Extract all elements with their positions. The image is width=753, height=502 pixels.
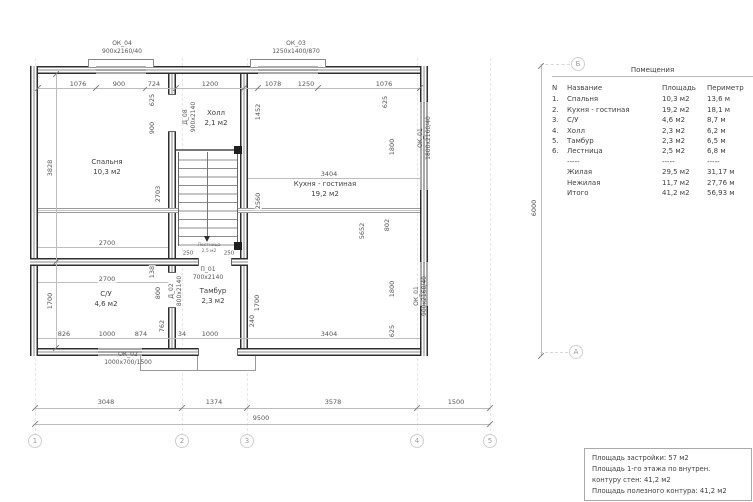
wall [30, 66, 428, 74]
dim-label: 2700 [98, 276, 117, 283]
room-name: Лестница [198, 243, 221, 249]
window-size: 1000х700/1500 [104, 359, 152, 367]
dim-label: 3404 [320, 331, 339, 338]
window-size: 900х2160/40 [102, 48, 142, 56]
dimension-line [35, 408, 490, 409]
summary-line-3: контуру стен: 41,2 м2 [592, 475, 744, 486]
door-size: 700х2140 [193, 274, 223, 282]
window-label-ok03: ОК_03 1250х1400/870 [272, 40, 320, 56]
table-row: 3. С/У 4,6 м2 8,7 м [552, 115, 753, 125]
dim-label: 250 [223, 251, 236, 257]
dimension-line [38, 338, 420, 339]
door-label-d08: Д_08 900х2140 [182, 102, 198, 132]
room-label-tambour: Тамбур 2,3 м2 [200, 287, 227, 307]
dim-label: 1700 [254, 294, 261, 313]
stair-direction-arrow-icon [204, 236, 210, 242]
window-id: ОК_01 [417, 116, 425, 160]
dim-label: 802 [384, 218, 391, 232]
dim-label: 2560 [255, 192, 262, 211]
grid-axis-4 [417, 58, 418, 436]
room-label-wc: С/У 4,6 м2 [94, 290, 117, 310]
stair-post [234, 242, 242, 250]
cell-perimeter: 6,8 м [707, 146, 753, 156]
dim-label: 240 [249, 314, 256, 328]
cell-perimeter: 13,6 м [707, 94, 753, 104]
window-ok03 [258, 66, 318, 74]
dimension-line [541, 66, 542, 356]
dim-label: 34 [177, 331, 187, 338]
room-area: 10,3 м2 [91, 168, 122, 178]
cell-n [552, 157, 567, 167]
cell-area: 29,5 м2 [662, 167, 707, 177]
dim-label: 762 [159, 319, 166, 333]
room-name: С/У [94, 290, 117, 300]
dim-label: 5652 [359, 222, 366, 241]
door-id: Д_08 [182, 102, 190, 132]
cell-perimeter: 8,7 м [707, 115, 753, 125]
dim-label: 800 [155, 286, 162, 300]
cell-name: ----- [567, 157, 662, 167]
door-size: 900х2140 [190, 102, 198, 132]
grid-bubble-a: А [569, 345, 583, 359]
dimension-line [56, 74, 57, 348]
dim-label: 1374 [205, 399, 224, 406]
cell-perimeter: 6,2 м [707, 126, 753, 136]
window-size: 900х2160/40 [421, 276, 429, 316]
table-row: Нежилая 11,7 м2 27,76 м [552, 178, 753, 188]
cell-name: Итого [567, 188, 662, 198]
stair-top-edge [176, 149, 240, 151]
dim-label: 138 [149, 265, 156, 279]
dim-label: 2703 [155, 185, 162, 204]
room-name: Тамбур [200, 287, 227, 297]
dim-label: 625 [149, 93, 156, 107]
cell-area: 11,7 м2 [662, 178, 707, 188]
cell-name: Нежилая [567, 178, 662, 188]
window-id: ОК_02 [104, 351, 152, 359]
room-area: 2,3 м2 [200, 297, 227, 307]
dim-label: 826 [57, 331, 71, 338]
cell-name: С/У [567, 115, 662, 125]
cell-perimeter: 27,76 м [707, 178, 753, 188]
cell-n: 6. [552, 146, 567, 156]
window-label-ok04: ОК_04 900х2160/40 [102, 40, 142, 56]
rooms-table-header: N Название Площадь Периметр [552, 83, 753, 93]
door-id: Д_02 [168, 276, 176, 306]
door-id: П_01 [193, 266, 223, 274]
cell-n: 1. [552, 94, 567, 104]
room-area: 4,6 м2 [94, 300, 117, 310]
table-row: 4. Холл 2,3 м2 6,2 м [552, 126, 753, 136]
dim-label: 3404 [320, 171, 339, 178]
cell-name: Холл [567, 126, 662, 136]
dim-label: 900 [112, 81, 126, 88]
rooms-table: Помещения N Название Площадь Периметр 1.… [552, 66, 753, 198]
cell-perimeter: 18,1 м [707, 105, 753, 115]
dim-label: 3578 [324, 399, 343, 406]
dimension-line [38, 247, 168, 248]
cell-area: ----- [662, 157, 707, 167]
room-label-kitchen: Кухня - гостиная 19,2 м2 [294, 180, 357, 200]
entry-door-opening [198, 348, 238, 356]
table-row: 5. Тамбур 2,3 м2 6,5 м [552, 136, 753, 146]
dim-label: 1500 [447, 399, 466, 406]
window-ok04 [96, 66, 146, 74]
summary-line-4: Площадь полезного контура: 41,2 м2 [592, 486, 744, 497]
dim-label: 3828 [47, 159, 54, 178]
cell-area: 19,2 м2 [662, 105, 707, 115]
window-id: ОК_03 [272, 40, 320, 48]
door-label-p01: П_01 700х2140 [193, 266, 223, 282]
col-header-name: Название [567, 83, 662, 93]
staircase [178, 152, 238, 246]
room-label-bedroom: Спальня 10,3 м2 [91, 158, 122, 178]
stair-post [234, 146, 242, 154]
grid-bubble-3: 3 [240, 434, 254, 448]
cell-area: 41,2 м2 [662, 188, 707, 198]
cell-perimeter: ----- [707, 157, 753, 167]
dim-label: 625 [389, 324, 396, 338]
room-name: Кухня - гостиная [294, 180, 357, 190]
room-area: 19,2 м2 [294, 190, 357, 200]
wall [30, 66, 38, 356]
cell-area: 2,3 м2 [662, 126, 707, 136]
window-id: ОК_01 [413, 276, 421, 316]
cell-area: 2,5 м2 [662, 146, 707, 156]
dim-label: 1800 [389, 280, 396, 299]
room-label-stairs: Лестница 2,5 м2 [198, 243, 221, 255]
grid-bubble-1: 1 [28, 434, 42, 448]
dim-label: 625 [382, 95, 389, 109]
room-label-hall: Холл 2,1 м2 [204, 109, 227, 129]
cell-n [552, 178, 567, 188]
cell-n: 2. [552, 105, 567, 115]
rooms-table-title: Помещения [552, 66, 753, 77]
summary-line-2: Площадь 1-го этажа по внутрен. [592, 464, 744, 475]
dimension-line [248, 178, 420, 179]
dim-label: 1200 [201, 81, 220, 88]
stair-walk-line [207, 152, 208, 236]
dim-label: 724 [147, 81, 161, 88]
cell-area: 10,3 м2 [662, 94, 707, 104]
cell-name: Спальня [567, 94, 662, 104]
area-summary-box: Площадь застройки: 57 м2 Площадь 1-го эт… [584, 448, 752, 501]
dim-label: 900 [149, 121, 156, 135]
table-row: Жилая 29,5 м2 31,17 м [552, 167, 753, 177]
cell-n: 3. [552, 115, 567, 125]
dim-label: 1000 [201, 331, 220, 338]
cell-name: Кухня - гостиная [567, 105, 662, 115]
dim-label: 250 [182, 251, 195, 257]
window-label-ok01-top: ОК_01 1800х2160/40 [417, 116, 433, 160]
cell-n [552, 188, 567, 198]
dim-label: 1250 [297, 81, 316, 88]
cell-n [552, 167, 567, 177]
table-row: ----- ----- ----- [552, 157, 753, 167]
dim-label: 1800 [389, 138, 396, 157]
door-opening-p01 [198, 258, 232, 266]
grid-bubble-2: 2 [175, 434, 189, 448]
dim-label: 1000 [98, 331, 117, 338]
dim-label: 1078 [264, 81, 283, 88]
room-name: Спальня [91, 158, 122, 168]
room-area: 2,1 м2 [204, 119, 227, 129]
col-header-n: N [552, 83, 567, 93]
cell-perimeter: 31,17 м [707, 167, 753, 177]
cell-perimeter: 6,5 м [707, 136, 753, 146]
dim-tick [538, 353, 544, 359]
room-area: 2,5 м2 [198, 249, 221, 255]
floor-plan-sheet: Лестница 2,5 м2 Спальня 10,3 м2 Холл 2,1… [0, 0, 753, 502]
cell-area: 4,6 м2 [662, 115, 707, 125]
window-id: ОК_04 [102, 40, 142, 48]
room-name: Холл [204, 109, 227, 119]
window-size: 1250х1400/870 [272, 48, 320, 56]
dim-label: 3048 [97, 399, 116, 406]
col-header-perimeter: Периметр [707, 83, 753, 93]
porch-step-line [197, 356, 198, 371]
table-row: 1. Спальня 10,3 м2 13,6 м [552, 94, 753, 104]
cell-n: 4. [552, 126, 567, 136]
col-header-area: Площадь [662, 83, 707, 93]
grid-bubble-4: 4 [410, 434, 424, 448]
table-row: Итого 41,2 м2 56,93 м [552, 188, 753, 198]
grid-axis-b-line [540, 64, 570, 65]
dim-label: 1700 [47, 292, 54, 311]
summary-line-1: Площадь застройки: 57 м2 [592, 453, 744, 464]
door-label-d02: Д_02 800х2140 [168, 276, 184, 306]
cell-name: Тамбур [567, 136, 662, 146]
door-opening-d08 [168, 94, 176, 132]
door-size: 800х2140 [176, 276, 184, 306]
cell-area: 2,3 м2 [662, 136, 707, 146]
dim-label: 9500 [252, 415, 271, 422]
dim-label: 2700 [98, 240, 117, 247]
dim-label: 874 [134, 331, 148, 338]
grid-axis-5 [490, 58, 491, 436]
rooms-table-body: 1. Спальня 10,3 м2 13,6 м 2. Кухня - гос… [552, 94, 753, 198]
table-row: 2. Кухня - гостиная 19,2 м2 18,1 м [552, 105, 753, 115]
dim-label: 1076 [375, 81, 394, 88]
cell-name: Жилая [567, 167, 662, 177]
porch [140, 356, 256, 371]
dimension-line [35, 424, 490, 425]
dim-label: 1452 [255, 103, 262, 122]
window-size: 1800х2160/40 [425, 116, 433, 160]
cell-name: Лестница [567, 146, 662, 156]
window-label-ok02: ОК_02 1000х700/1500 [104, 351, 152, 367]
dim-label: 1076 [69, 81, 88, 88]
dim-label: 6000 [531, 199, 538, 218]
grid-bubble-5: 5 [483, 434, 497, 448]
cell-perimeter: 56,93 м [707, 188, 753, 198]
window-label-ok01-bottom: ОК_01 900х2160/40 [413, 276, 429, 316]
table-row: 6. Лестница 2,5 м2 6,8 м [552, 146, 753, 156]
cell-n: 5. [552, 136, 567, 146]
